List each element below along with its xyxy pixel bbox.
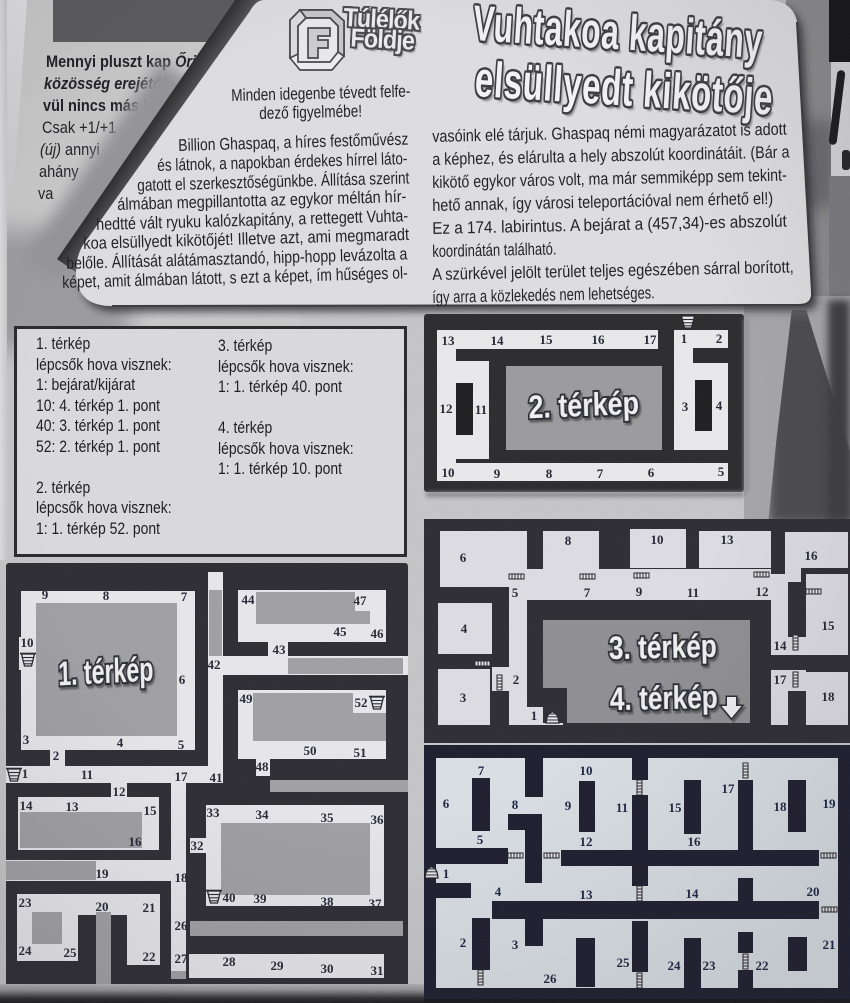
svg-text:13: 13: [580, 887, 594, 902]
svg-text:49: 49: [240, 691, 254, 706]
svg-text:23: 23: [19, 895, 33, 910]
svg-text:1: 1: [443, 866, 450, 881]
svg-text:7: 7: [478, 763, 485, 778]
svg-text:17: 17: [774, 672, 788, 687]
svg-text:22: 22: [143, 949, 156, 964]
svg-text:14: 14: [774, 638, 788, 653]
svg-text:4: 4: [716, 398, 723, 413]
svg-text:13: 13: [721, 532, 735, 547]
svg-text:17: 17: [644, 332, 658, 347]
svg-text:4: 4: [117, 735, 124, 750]
svg-text:3: 3: [682, 399, 689, 414]
svg-text:11: 11: [687, 585, 699, 600]
svg-text:10: 10: [580, 763, 593, 778]
svg-text:37: 37: [369, 896, 383, 911]
svg-text:26: 26: [544, 971, 558, 986]
svg-text:43: 43: [273, 642, 287, 657]
svg-text:19: 19: [96, 866, 110, 881]
svg-text:3: 3: [460, 690, 467, 705]
svg-text:7: 7: [597, 466, 604, 481]
svg-text:2: 2: [716, 331, 723, 346]
svg-text:5: 5: [477, 832, 484, 847]
svg-text:6: 6: [648, 465, 655, 480]
svg-text:13: 13: [442, 333, 456, 348]
svg-text:48: 48: [256, 759, 270, 774]
svg-text:11: 11: [475, 402, 487, 417]
svg-text:30: 30: [321, 961, 334, 976]
svg-text:22: 22: [756, 958, 769, 973]
svg-text:17: 17: [722, 781, 736, 796]
svg-text:44: 44: [242, 592, 256, 607]
svg-text:4: 4: [495, 884, 502, 899]
svg-text:31: 31: [371, 963, 384, 978]
svg-text:5: 5: [718, 464, 725, 479]
svg-text:21: 21: [823, 937, 836, 952]
svg-text:14: 14: [686, 886, 700, 901]
svg-text:18: 18: [774, 799, 788, 814]
svg-text:23: 23: [703, 958, 717, 973]
svg-text:41: 41: [210, 770, 223, 785]
svg-text:18: 18: [822, 689, 836, 704]
svg-text:46: 46: [371, 626, 385, 641]
svg-text:3: 3: [512, 937, 519, 952]
svg-text:28: 28: [223, 954, 237, 969]
svg-text:40: 40: [223, 890, 236, 905]
svg-text:2: 2: [53, 748, 60, 763]
svg-text:4. térkép: 4. térkép: [610, 681, 718, 718]
svg-text:8: 8: [103, 588, 110, 603]
svg-text:12: 12: [580, 834, 593, 849]
svg-text:18: 18: [175, 870, 189, 885]
svg-text:2: 2: [513, 672, 520, 687]
svg-text:26: 26: [175, 918, 189, 933]
svg-text:7: 7: [584, 585, 591, 600]
svg-text:14: 14: [20, 798, 34, 813]
svg-text:9: 9: [565, 798, 572, 813]
svg-text:8: 8: [512, 797, 519, 812]
svg-text:19: 19: [823, 796, 837, 811]
svg-text:9: 9: [636, 584, 643, 599]
svg-text:36: 36: [371, 812, 385, 827]
svg-text:35: 35: [321, 810, 335, 825]
svg-text:1: 1: [681, 331, 688, 346]
svg-text:1: 1: [531, 708, 538, 723]
svg-text:39: 39: [254, 891, 268, 906]
svg-text:13: 13: [66, 799, 80, 814]
svg-text:12: 12: [756, 584, 769, 599]
svg-text:16: 16: [688, 834, 702, 849]
svg-text:25: 25: [617, 955, 631, 970]
svg-text:47: 47: [354, 593, 368, 608]
svg-text:16: 16: [129, 834, 143, 849]
svg-text:15: 15: [822, 618, 836, 633]
svg-text:15: 15: [144, 803, 158, 818]
svg-text:12: 12: [113, 784, 126, 799]
svg-text:6: 6: [179, 672, 186, 687]
svg-text:3: 3: [23, 732, 30, 747]
svg-text:17: 17: [175, 769, 189, 784]
svg-text:32: 32: [191, 838, 204, 853]
svg-text:3. térkép: 3. térkép: [609, 630, 717, 667]
svg-text:20: 20: [96, 899, 109, 914]
svg-text:38: 38: [321, 894, 335, 909]
svg-text:10: 10: [21, 635, 34, 650]
svg-text:4: 4: [461, 621, 468, 636]
svg-text:24: 24: [668, 958, 682, 973]
svg-text:15: 15: [669, 800, 683, 815]
svg-text:16: 16: [592, 332, 606, 347]
svg-text:10: 10: [651, 532, 664, 547]
svg-text:51: 51: [354, 745, 367, 760]
svg-text:14: 14: [491, 333, 505, 348]
svg-text:20: 20: [807, 884, 820, 899]
svg-text:21: 21: [143, 900, 156, 915]
svg-text:34: 34: [256, 807, 270, 822]
svg-text:6: 6: [443, 796, 450, 811]
svg-text:52: 52: [355, 695, 368, 710]
svg-text:15: 15: [540, 332, 554, 347]
svg-text:27: 27: [175, 951, 189, 966]
svg-text:11: 11: [81, 767, 93, 782]
svg-text:33: 33: [207, 805, 221, 820]
svg-text:25: 25: [64, 945, 78, 960]
svg-text:1: 1: [22, 766, 29, 781]
svg-text:50: 50: [304, 743, 317, 758]
svg-text:10: 10: [442, 465, 455, 480]
svg-text:1. térkép: 1. térkép: [58, 651, 154, 693]
svg-text:12: 12: [440, 401, 453, 416]
svg-text:42: 42: [208, 657, 221, 672]
svg-text:7: 7: [181, 589, 188, 604]
svg-text:8: 8: [546, 466, 553, 481]
svg-text:5: 5: [512, 585, 519, 600]
svg-text:29: 29: [271, 958, 285, 973]
svg-text:8: 8: [565, 533, 572, 548]
svg-text:24: 24: [19, 943, 33, 958]
svg-text:2: 2: [460, 935, 467, 950]
svg-text:16: 16: [805, 548, 819, 563]
svg-text:5: 5: [178, 737, 185, 752]
svg-text:9: 9: [494, 466, 501, 481]
svg-text:6: 6: [460, 550, 467, 565]
svg-text:2. térkép: 2. térkép: [528, 386, 640, 426]
svg-text:9: 9: [42, 587, 49, 602]
svg-text:11: 11: [616, 800, 628, 815]
svg-text:45: 45: [334, 624, 348, 639]
